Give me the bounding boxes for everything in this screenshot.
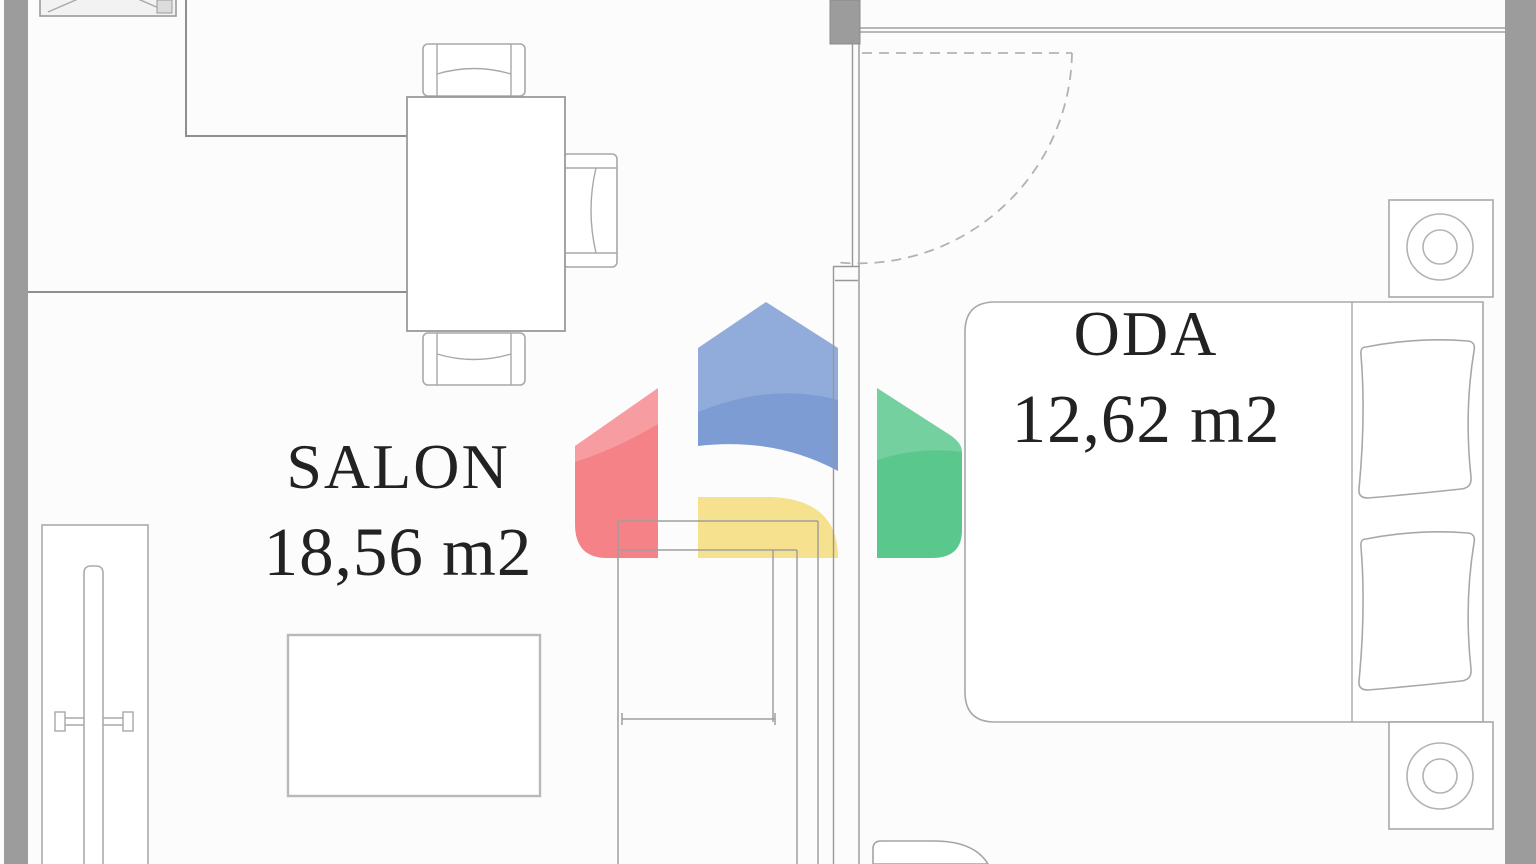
left-wall — [4, 0, 28, 864]
wardrobe — [618, 521, 818, 864]
radiator — [42, 525, 148, 864]
radiator-core — [84, 566, 103, 864]
floor-plan: SALON 18,56 m2 ODA 12,62 m2 — [0, 0, 1536, 864]
salon-room-name: SALON — [170, 428, 626, 506]
dining-set — [407, 44, 617, 385]
nightstand-bottom-body — [1389, 722, 1493, 829]
kitchen-fixture — [40, 0, 176, 16]
bed-pillow-top — [1359, 340, 1474, 498]
oda-room-name: ODA — [918, 295, 1374, 373]
salon-room-area: 18,56 m2 — [170, 506, 626, 598]
chair-top — [423, 44, 525, 96]
fixture-corner-box — [157, 0, 172, 13]
door-arc — [834, 53, 1072, 263]
oda-room-area: 12,62 m2 — [918, 373, 1374, 465]
chair-right — [563, 154, 617, 267]
dining-table — [407, 97, 565, 331]
door-swing — [834, 53, 1072, 263]
kitchen-wall — [186, 0, 407, 136]
salon-room-label: SALON 18,56 m2 — [170, 428, 626, 598]
nightstand-top — [1389, 200, 1493, 297]
oda-bottom-seat — [873, 841, 988, 864]
right-wall — [1505, 0, 1536, 864]
oda-room-label: ODA 12,62 m2 — [918, 295, 1374, 465]
door-wall-block — [830, 0, 860, 44]
bed-pillow-bottom — [1359, 532, 1474, 690]
coffee-table — [288, 635, 540, 796]
fixture-body — [40, 0, 176, 16]
nightstand-bottom — [1389, 722, 1493, 829]
watermark-logo — [575, 302, 962, 558]
logo-yellow-shape — [698, 497, 838, 558]
